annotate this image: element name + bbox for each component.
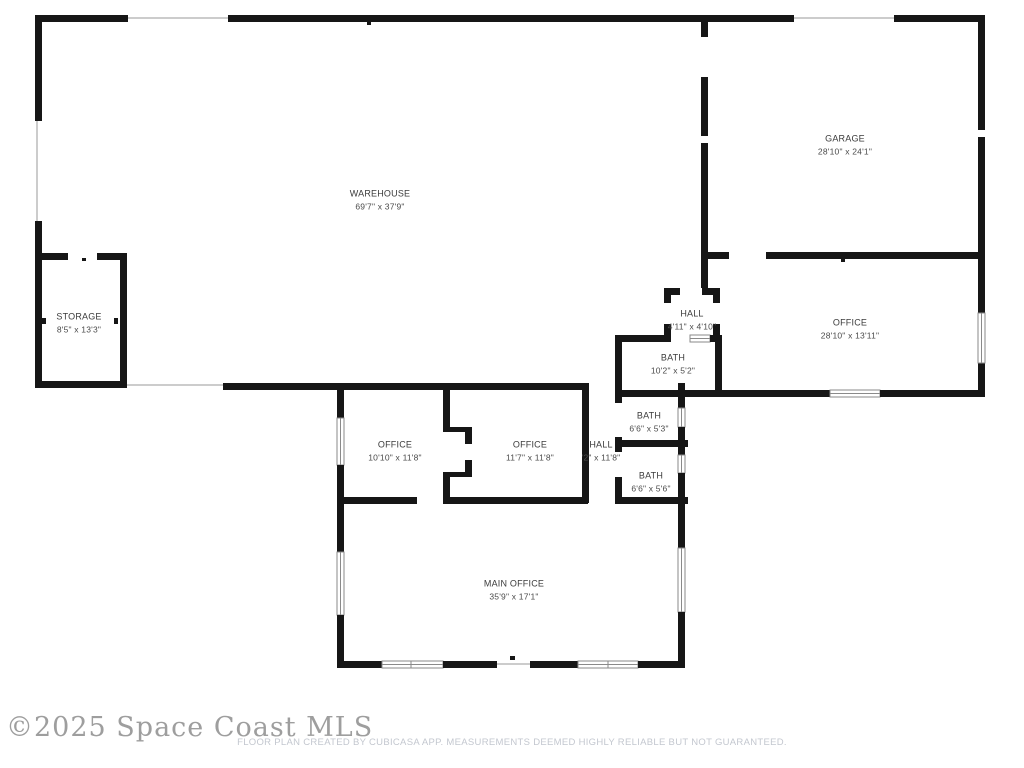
room-name: HALL	[582, 438, 621, 451]
floor-plan-canvas: WAREHOUSE 69'7" x 37'9" GARAGE 28'10" x …	[0, 0, 1024, 768]
room-dims: 28'10" x 13'11"	[821, 329, 879, 341]
room-label-bath-lower-small: BATH 6'6" x 5'6"	[631, 469, 670, 494]
room-name: WAREHOUSE	[350, 187, 410, 200]
room-dims: 6'6" x 5'3"	[629, 422, 668, 434]
room-label-bath-upper-small: BATH 6'6" x 5'3"	[629, 409, 668, 434]
room-name: OFFICE	[368, 438, 422, 451]
room-name: BATH	[629, 409, 668, 422]
room-label-main-office: MAIN OFFICE 35'9" x 17'1"	[484, 577, 544, 602]
room-dims: 4'11" x 4'10"	[668, 320, 717, 332]
room-dims: 6'6" x 5'6"	[631, 482, 670, 494]
room-label-office-1: OFFICE 10'10" x 11'8"	[368, 438, 422, 463]
room-label-warehouse: WAREHOUSE 69'7" x 37'9"	[350, 187, 410, 212]
room-name: GARAGE	[818, 132, 872, 145]
room-dims: 69'7" x 37'9"	[350, 200, 410, 212]
room-label-garage: GARAGE 28'10" x 24'1"	[818, 132, 872, 157]
floor-plan-walls	[0, 0, 1024, 768]
room-name: HALL	[668, 307, 717, 320]
room-label-office-right: OFFICE 28'10" x 13'11"	[821, 316, 879, 341]
room-label-hall-lower: HALL '2" x 11'8"	[582, 438, 621, 463]
room-dims: 10'10" x 11'8"	[368, 451, 422, 463]
room-dims: 28'10" x 24'1"	[818, 145, 872, 157]
room-label-bath-large: BATH 10'2" x 5'2"	[651, 351, 695, 376]
room-dims: 35'9" x 17'1"	[484, 590, 544, 602]
room-dims: '2" x 11'8"	[582, 451, 621, 463]
room-label-hall-upper: HALL 4'11" x 4'10"	[668, 307, 717, 332]
room-name: BATH	[651, 351, 695, 364]
room-label-office-2: OFFICE 11'7" x 11'8"	[506, 438, 554, 463]
room-dims: 8'5" x 13'3"	[56, 323, 101, 335]
cubicasa-disclaimer: FLOOR PLAN CREATED BY CUBICASA APP. MEAS…	[0, 737, 1024, 748]
room-name: OFFICE	[506, 438, 554, 451]
room-name: BATH	[631, 469, 670, 482]
room-name: OFFICE	[821, 316, 879, 329]
room-dims: 10'2" x 5'2"	[651, 364, 695, 376]
room-name: STORAGE	[56, 310, 101, 323]
room-name: MAIN OFFICE	[484, 577, 544, 590]
room-dims: 11'7" x 11'8"	[506, 451, 554, 463]
room-label-storage: STORAGE 8'5" x 13'3"	[56, 310, 101, 335]
